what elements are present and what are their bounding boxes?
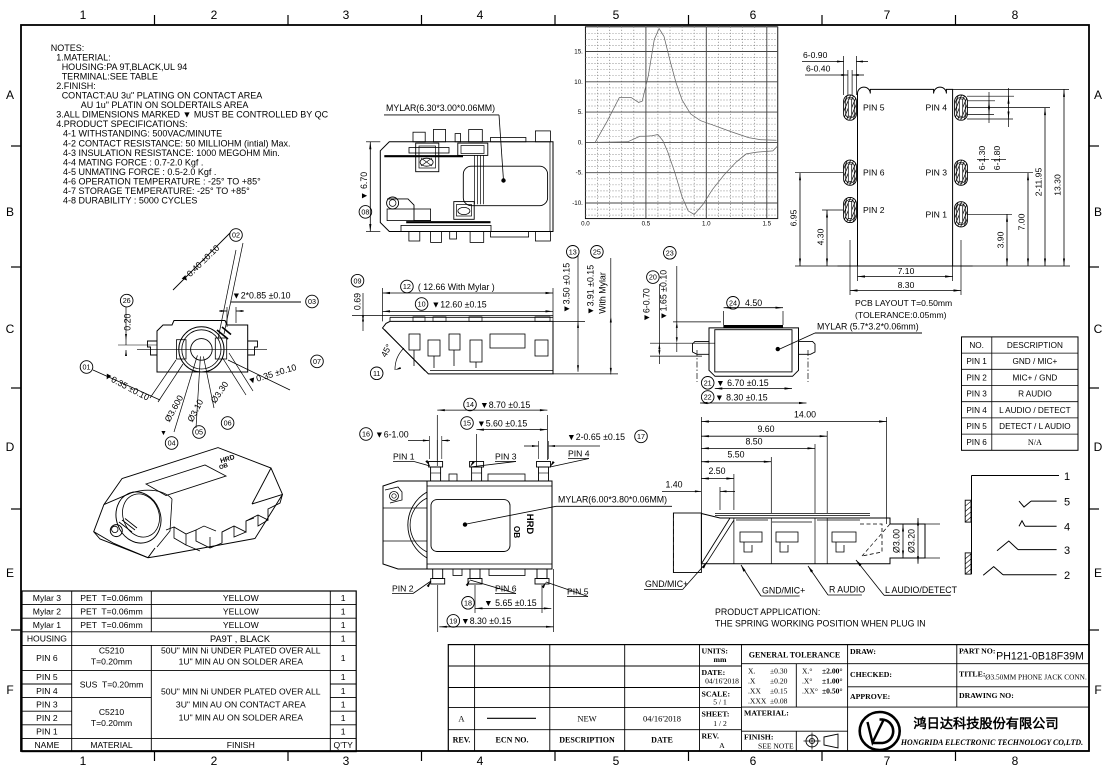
svg-text:CONTACT:AU 3u" PLATING ON CONT: CONTACT:AU 3u" PLATING ON CONTACT AREA — [62, 91, 263, 101]
svg-text:▼2*0.85 ±0.10: ▼2*0.85 ±0.10 — [232, 291, 291, 301]
svg-text:±0.20: ±0.20 — [770, 677, 788, 686]
svg-text:mm: mm — [714, 655, 727, 664]
svg-text:6-1.30: 6-1.30 — [977, 146, 987, 171]
svg-text:D: D — [1094, 440, 1103, 454]
svg-text:▼12.60 ±0.15: ▼12.60 ±0.15 — [432, 300, 487, 310]
svg-text:2.FINISH:: 2.FINISH: — [56, 81, 96, 91]
svg-text:PIN 4: PIN 4 — [966, 406, 987, 415]
svg-text:0.0: 0.0 — [581, 221, 590, 228]
svg-text:▼ 6.70 ±0.15: ▼ 6.70 ±0.15 — [716, 378, 769, 388]
svg-text:HRD: HRD — [524, 514, 535, 535]
svg-text:1: 1 — [80, 8, 87, 22]
svg-text:PIN 1: PIN 1 — [36, 727, 58, 737]
svg-text:C: C — [6, 322, 15, 336]
svg-text:REV.: REV. — [453, 736, 471, 745]
svg-text:GND/MIC+: GND/MIC+ — [762, 586, 805, 596]
svg-text:1: 1 — [341, 713, 346, 723]
svg-text:PA9T , BLACK: PA9T , BLACK — [210, 634, 271, 644]
svg-text:1.5: 1.5 — [762, 221, 771, 228]
svg-text:Mylar 1: Mylar 1 — [33, 620, 61, 630]
svg-text:6-0.40: 6-0.40 — [806, 64, 831, 74]
svg-text:A: A — [719, 741, 725, 750]
svg-text:±0.30: ±0.30 — [770, 667, 788, 676]
svg-text:A: A — [6, 88, 14, 102]
svg-text:4-8 DURABILITY : 5000 CYCLES: 4-8 DURABILITY : 5000 CYCLES — [63, 196, 197, 206]
svg-text:1: 1 — [341, 727, 346, 737]
svg-text:1: 1 — [341, 699, 346, 709]
svg-text:05: 05 — [195, 428, 203, 437]
svg-text:DETECT / L AUDIO: DETECT / L AUDIO — [999, 422, 1070, 431]
svg-text:PART NO:: PART NO: — [959, 647, 995, 656]
svg-text:1: 1 — [341, 686, 346, 696]
svg-text:▼ 8.30 ±0.15: ▼ 8.30 ±0.15 — [715, 392, 768, 402]
svg-text:APPROVE:: APPROVE: — [850, 692, 890, 701]
svg-text:6-1.80: 6-1.80 — [992, 146, 1002, 171]
svg-text:1 / 2: 1 / 2 — [713, 719, 727, 728]
svg-text:4-6 OPERATION TEMPERATURE : -2: 4-6 OPERATION TEMPERATURE : -25° TO +85° — [63, 177, 261, 187]
svg-text:3U" MIN AU ON CONTACT AREA: 3U" MIN AU ON CONTACT AREA — [176, 700, 306, 710]
svg-text:14.00: 14.00 — [794, 410, 816, 420]
svg-text:MATERIAL:: MATERIAL: — [744, 709, 789, 718]
svg-text:±0.08: ±0.08 — [770, 697, 788, 706]
svg-text:T=0.20mm: T=0.20mm — [91, 657, 132, 667]
svg-text:5: 5 — [1064, 496, 1070, 508]
svg-text:▼ 5.65 ±0.15: ▼ 5.65 ±0.15 — [484, 598, 537, 608]
svg-text:X.: X. — [748, 667, 755, 676]
svg-text:HONGRIDA ELECTRONIC TECHNOLOGY: HONGRIDA ELECTRONIC TECHNOLOGY CO,LTD. — [900, 738, 1083, 747]
svg-text:1: 1 — [1064, 471, 1070, 483]
svg-text:4: 4 — [477, 8, 484, 22]
svg-text:DRAW:: DRAW: — [850, 647, 876, 656]
svg-text:DRAWING NO:: DRAWING NO: — [959, 691, 1014, 700]
svg-text:YELLOW: YELLOW — [223, 593, 260, 603]
svg-text:PIN 2: PIN 2 — [36, 713, 58, 723]
svg-text:2.50: 2.50 — [708, 466, 725, 476]
svg-text:3.90: 3.90 — [996, 231, 1006, 248]
svg-text:OB: OB — [512, 526, 521, 538]
svg-text:24: 24 — [729, 298, 737, 307]
svg-text:PIN 3: PIN 3 — [926, 168, 948, 178]
svg-text:4.PRODUCT SPECIFICATIONS:: 4.PRODUCT SPECIFICATIONS: — [56, 119, 187, 129]
svg-text:DATE: DATE — [651, 736, 673, 745]
svg-text:MYLAR(6.30*3.00*0.06MM): MYLAR(6.30*3.00*0.06MM) — [386, 103, 495, 113]
svg-text:4: 4 — [1064, 522, 1070, 534]
svg-text:16: 16 — [362, 430, 370, 439]
svg-text:HOUSING:PA 9T,BLACK,UL 94: HOUSING:PA 9T,BLACK,UL 94 — [62, 62, 188, 72]
svg-text:PIN 1: PIN 1 — [393, 452, 415, 462]
svg-text:5: 5 — [613, 754, 620, 768]
svg-text:▼3.91 ±0.15: ▼3.91 ±0.15 — [586, 265, 596, 315]
svg-text:SEE NOTE: SEE NOTE — [758, 742, 794, 751]
svg-text:±2.00°: ±2.00° — [822, 667, 843, 676]
svg-text:10.: 10. — [574, 79, 583, 86]
svg-text:▼5.60 ±0.15: ▼5.60 ±0.15 — [477, 419, 527, 429]
svg-text:3.ALL DIMENSIONS MARKED ▼ MUST: 3.ALL DIMENSIONS MARKED ▼ MUST BE CONTRO… — [56, 110, 328, 120]
svg-text:GND/MIC+: GND/MIC+ — [645, 579, 688, 589]
svg-text:N/A: N/A — [1028, 438, 1042, 447]
svg-text:NEW: NEW — [577, 714, 596, 724]
svg-text:19: 19 — [449, 617, 457, 626]
svg-text:PRODUCT APPLICATION:: PRODUCT APPLICATION: — [715, 607, 820, 617]
svg-text:12: 12 — [403, 282, 411, 291]
svg-text:4-7 STORAGE TEMPERATURE: -25°: 4-7 STORAGE TEMPERATURE: -25° TO +85° — [63, 186, 250, 196]
svg-text:8: 8 — [1012, 8, 1019, 22]
svg-text:1U" MIN AU ON SOLDER AREA: 1U" MIN AU ON SOLDER AREA — [179, 657, 304, 667]
svg-text:25: 25 — [593, 247, 601, 256]
svg-text:NAME: NAME — [34, 740, 59, 750]
svg-text:PET T=0.06mm: PET T=0.06mm — [80, 593, 143, 603]
svg-text:10: 10 — [418, 300, 426, 309]
svg-text:▼2-0.65 ±0.15: ▼2-0.65 ±0.15 — [567, 432, 625, 442]
svg-text:6.95: 6.95 — [789, 209, 799, 226]
svg-text:Q'TY: Q'TY — [334, 740, 354, 750]
svg-text:.XX°: .XX° — [802, 687, 818, 696]
svg-text:0.20: 0.20 — [123, 314, 133, 331]
svg-text:TERMINAL:SEE TABLE: TERMINAL:SEE TABLE — [62, 71, 158, 81]
svg-text:50U" MIN Ni UNDER PLATED OVER: 50U" MIN Ni UNDER PLATED OVER ALL — [161, 646, 321, 656]
svg-text:09: 09 — [354, 276, 362, 285]
svg-text:07: 07 — [313, 357, 321, 366]
svg-text:PIN 4: PIN 4 — [568, 449, 590, 459]
svg-text:B: B — [1094, 205, 1102, 219]
svg-text:SHEET:: SHEET: — [702, 710, 730, 719]
svg-text:NOTES:: NOTES: — [51, 43, 85, 53]
svg-text:PIN 4: PIN 4 — [926, 103, 948, 113]
svg-text:02: 02 — [232, 231, 240, 240]
svg-text:Mylar 3: Mylar 3 — [33, 593, 61, 603]
svg-text:YELLOW: YELLOW — [223, 620, 260, 630]
svg-text:PIN 6: PIN 6 — [863, 168, 885, 178]
svg-text:04: 04 — [168, 439, 176, 448]
svg-text:▼8.30 ±0.15: ▼8.30 ±0.15 — [461, 616, 511, 626]
svg-text:PIN 5: PIN 5 — [36, 672, 58, 682]
svg-text:TITLE:: TITLE: — [959, 670, 985, 679]
svg-text:14: 14 — [466, 400, 474, 409]
svg-text:1.40: 1.40 — [665, 480, 682, 490]
svg-text:▼8.70 ±0.15: ▼8.70 ±0.15 — [480, 400, 530, 410]
svg-text:L AUDIO/DETECT: L AUDIO/DETECT — [885, 585, 958, 595]
svg-text:0.5: 0.5 — [642, 221, 651, 228]
svg-text:DESCRIPTION: DESCRIPTION — [1007, 341, 1063, 350]
svg-text:▼3.50 ±0.15: ▼3.50 ±0.15 — [562, 263, 572, 313]
svg-text:▼ 6.70: ▼ 6.70 — [359, 172, 369, 200]
svg-text:04/16'2018: 04/16'2018 — [643, 714, 681, 724]
svg-text:PIN 6: PIN 6 — [36, 653, 58, 663]
svg-text:1: 1 — [341, 634, 346, 644]
svg-text:SUS T=0.20mm: SUS T=0.20mm — [80, 680, 144, 690]
svg-text:PIN 5: PIN 5 — [567, 587, 589, 597]
svg-text:7: 7 — [884, 754, 891, 768]
svg-text:0.: 0. — [578, 139, 583, 146]
svg-text:17: 17 — [637, 432, 645, 441]
svg-text:1: 1 — [341, 620, 346, 630]
svg-text:13.30: 13.30 — [1053, 174, 1063, 196]
svg-text:2-11.95: 2-11.95 — [1034, 168, 1044, 197]
svg-text:6-0.90: 6-0.90 — [803, 50, 828, 60]
svg-text:06: 06 — [224, 419, 232, 428]
svg-text:E: E — [6, 566, 14, 580]
svg-text:08: 08 — [361, 208, 369, 217]
svg-text:22: 22 — [704, 393, 712, 402]
svg-text:F: F — [6, 683, 13, 697]
svg-text:±0.50°: ±0.50° — [822, 687, 843, 696]
svg-text:THE SPRING WORKING POSITION WH: THE SPRING WORKING POSITION WHEN PLUG IN — [715, 619, 926, 629]
svg-text:01: 01 — [83, 363, 91, 372]
svg-text:3: 3 — [1064, 545, 1070, 557]
svg-text:Ø3.00: Ø3.00 — [892, 529, 902, 553]
svg-text:5.50: 5.50 — [727, 450, 744, 460]
svg-text:T=0.20mm: T=0.20mm — [91, 718, 132, 728]
svg-text:5 / 1: 5 / 1 — [713, 698, 727, 707]
svg-text:ECN NO.: ECN NO. — [496, 736, 529, 745]
svg-text:MYLAR (5.7*3.2*0.06mm): MYLAR (5.7*3.2*0.06mm) — [817, 322, 919, 332]
svg-text:PET T=0.06mm: PET T=0.06mm — [80, 606, 143, 616]
svg-text:2: 2 — [1064, 570, 1070, 582]
svg-text:8: 8 — [1012, 754, 1019, 768]
svg-text:B: B — [6, 205, 14, 219]
svg-text:7.10: 7.10 — [898, 266, 915, 276]
svg-text:C5210: C5210 — [99, 707, 125, 717]
svg-text:15: 15 — [463, 419, 471, 428]
svg-text:±1.00°: ±1.00° — [822, 677, 843, 686]
svg-text:GND / MIC+: GND / MIC+ — [1012, 357, 1057, 366]
svg-text:4-1 WITHSTANDING: 500VAC/MINUT: 4-1 WITHSTANDING: 500VAC/MINUTE — [63, 129, 222, 139]
svg-text:2: 2 — [211, 8, 218, 22]
svg-text:26: 26 — [123, 296, 131, 305]
svg-text:9.60: 9.60 — [757, 424, 774, 434]
svg-text:5: 5 — [613, 8, 620, 22]
svg-text:鸿日达科技股份有限公司: 鸿日达科技股份有限公司 — [913, 715, 1058, 731]
svg-text:.X°: .X° — [802, 677, 812, 686]
svg-text:5.: 5. — [578, 109, 583, 116]
svg-text:11: 11 — [373, 369, 380, 378]
svg-text:1: 1 — [341, 672, 346, 682]
svg-text:▼1.65 ±0.10: ▼1.65 ±0.10 — [658, 270, 668, 320]
svg-text:C5210: C5210 — [99, 646, 125, 656]
svg-text:R AUDIO: R AUDIO — [829, 585, 865, 595]
svg-text:PIN 5: PIN 5 — [863, 103, 885, 113]
svg-text:.XX: .XX — [748, 687, 761, 696]
svg-text:-10.: -10. — [572, 200, 583, 207]
svg-text:4: 4 — [477, 754, 484, 768]
svg-text:4.50: 4.50 — [745, 298, 762, 308]
svg-text:L AUDIO / DETECT: L AUDIO / DETECT — [999, 406, 1071, 415]
svg-text:PIN 2: PIN 2 — [966, 373, 987, 382]
svg-text:F: F — [1094, 683, 1101, 697]
svg-text:1: 1 — [341, 653, 346, 663]
svg-text:PIN 2: PIN 2 — [392, 584, 414, 594]
svg-text:DESCRIPTION: DESCRIPTION — [559, 736, 615, 745]
svg-text:C: C — [1094, 322, 1103, 336]
svg-text:CHECKED:: CHECKED: — [850, 670, 892, 679]
svg-text:4-4 MATING FORCE : 0.7-2.0 Kgf: 4-4 MATING FORCE : 0.7-2.0 Kgf . — [63, 157, 203, 167]
svg-text:MATERIAL: MATERIAL — [90, 740, 133, 750]
svg-text:3: 3 — [343, 8, 350, 22]
svg-text:GENERAL TOLERANCE: GENERAL TOLERANCE — [749, 651, 841, 660]
svg-text:PIN 3: PIN 3 — [495, 452, 517, 462]
svg-text:21: 21 — [704, 378, 712, 387]
svg-text:7.00: 7.00 — [1017, 213, 1027, 230]
svg-text:( 12.66 With Mylar ): ( 12.66 With Mylar ) — [418, 282, 495, 292]
svg-text:PIN 5: PIN 5 — [966, 422, 987, 431]
svg-text:4.30: 4.30 — [816, 228, 826, 245]
svg-text:3: 3 — [343, 754, 350, 768]
svg-text:8.50: 8.50 — [745, 437, 762, 447]
svg-text:PH121-0B18F39M: PH121-0B18F39M — [996, 651, 1084, 663]
svg-text:REV.: REV. — [702, 732, 719, 741]
svg-text:PCB LAYOUT T=0.50mm: PCB LAYOUT T=0.50mm — [855, 298, 952, 308]
svg-text:HOUSING: HOUSING — [27, 634, 67, 644]
svg-text:18: 18 — [464, 598, 472, 607]
svg-text:▼: ▼ — [160, 430, 167, 437]
svg-text:▼6-0.70: ▼6-0.70 — [642, 288, 652, 322]
svg-text:Mylar 2: Mylar 2 — [33, 606, 61, 616]
svg-text:4-2 CONTACT RESISTANCE: 50 MIL: 4-2 CONTACT RESISTANCE: 50 MILLIOHM (int… — [63, 138, 291, 148]
svg-text:4-5 UNMATING FORCE : 0.5-2.0 K: 4-5 UNMATING FORCE : 0.5-2.0 Kgf . — [63, 167, 216, 177]
svg-text:FINISH: FINISH — [227, 740, 255, 750]
svg-text:MYLAR(6.00*3.80*0.06MM): MYLAR(6.00*3.80*0.06MM) — [558, 495, 667, 505]
svg-text:1U" MIN AU ON SOLDER AREA: 1U" MIN AU ON SOLDER AREA — [179, 713, 304, 723]
svg-text:-5.: -5. — [576, 170, 584, 177]
svg-text:YELLOW: YELLOW — [223, 606, 260, 616]
svg-text:20: 20 — [649, 273, 657, 282]
svg-text:0.69: 0.69 — [353, 293, 363, 310]
svg-text:PET T=0.06mm: PET T=0.06mm — [80, 620, 143, 630]
svg-text:1: 1 — [341, 606, 346, 616]
svg-text:PIN 2: PIN 2 — [863, 205, 885, 215]
svg-text:.X: .X — [748, 677, 756, 686]
svg-text:R AUDIO: R AUDIO — [1018, 390, 1052, 399]
svg-text:1: 1 — [341, 593, 346, 603]
svg-text:PIN 1: PIN 1 — [966, 357, 987, 366]
svg-text:PIN 4: PIN 4 — [36, 686, 58, 696]
svg-text:4-3 INSULATION RESISTANCE: 100: 4-3 INSULATION RESISTANCE: 1000 MEGOHM M… — [63, 148, 280, 158]
svg-text:7: 7 — [884, 8, 891, 22]
svg-text:(TOLERANCE:0.05mm): (TOLERANCE:0.05mm) — [855, 310, 947, 320]
svg-text:NO.: NO. — [969, 341, 984, 350]
svg-text:03: 03 — [308, 297, 316, 306]
svg-text:A: A — [1094, 88, 1102, 102]
svg-text:PIN 3: PIN 3 — [966, 390, 987, 399]
svg-text:50U" MIN Ni UNDER PLATED OVER: 50U" MIN Ni UNDER PLATED OVER ALL — [161, 687, 321, 697]
svg-text:▼6-1.00: ▼6-1.00 — [375, 430, 409, 440]
svg-text:PIN 3: PIN 3 — [36, 699, 58, 709]
svg-text:AU 1u" PLATIN ON SOLDERTAILS A: AU 1u" PLATIN ON SOLDERTAILS AREA — [81, 100, 249, 110]
svg-text:±0.15: ±0.15 — [770, 687, 788, 696]
svg-text:MIC+ / GND: MIC+ / GND — [1012, 373, 1057, 382]
svg-text:Ø3.50MM PHONE JACK CONN.: Ø3.50MM PHONE JACK CONN. — [985, 673, 1087, 682]
svg-text:23: 23 — [666, 248, 674, 257]
svg-text:13: 13 — [569, 247, 577, 256]
svg-text:With Mylar: With Mylar — [598, 272, 608, 314]
svg-text:1.0: 1.0 — [702, 221, 711, 228]
svg-text:Ø3.20: Ø3.20 — [907, 529, 917, 553]
svg-text:1: 1 — [80, 754, 87, 768]
svg-text:.XXX: .XXX — [748, 697, 767, 706]
svg-text:1.MATERIAL:: 1.MATERIAL: — [56, 52, 110, 62]
svg-text:FINISH:: FINISH: — [744, 733, 773, 742]
svg-text:D: D — [6, 440, 15, 454]
svg-text:PIN 6: PIN 6 — [966, 438, 987, 447]
svg-text:15.: 15. — [574, 49, 583, 56]
svg-text:6: 6 — [750, 8, 757, 22]
svg-text:8.30: 8.30 — [898, 280, 915, 290]
svg-text:04/16'2018: 04/16'2018 — [705, 677, 739, 686]
svg-text:2: 2 — [211, 754, 218, 768]
svg-text:X.°: X.° — [802, 667, 812, 676]
svg-text:E: E — [1094, 566, 1102, 580]
svg-text:PIN 1: PIN 1 — [926, 209, 948, 219]
svg-text:6: 6 — [750, 754, 757, 768]
svg-text:A: A — [458, 714, 465, 724]
